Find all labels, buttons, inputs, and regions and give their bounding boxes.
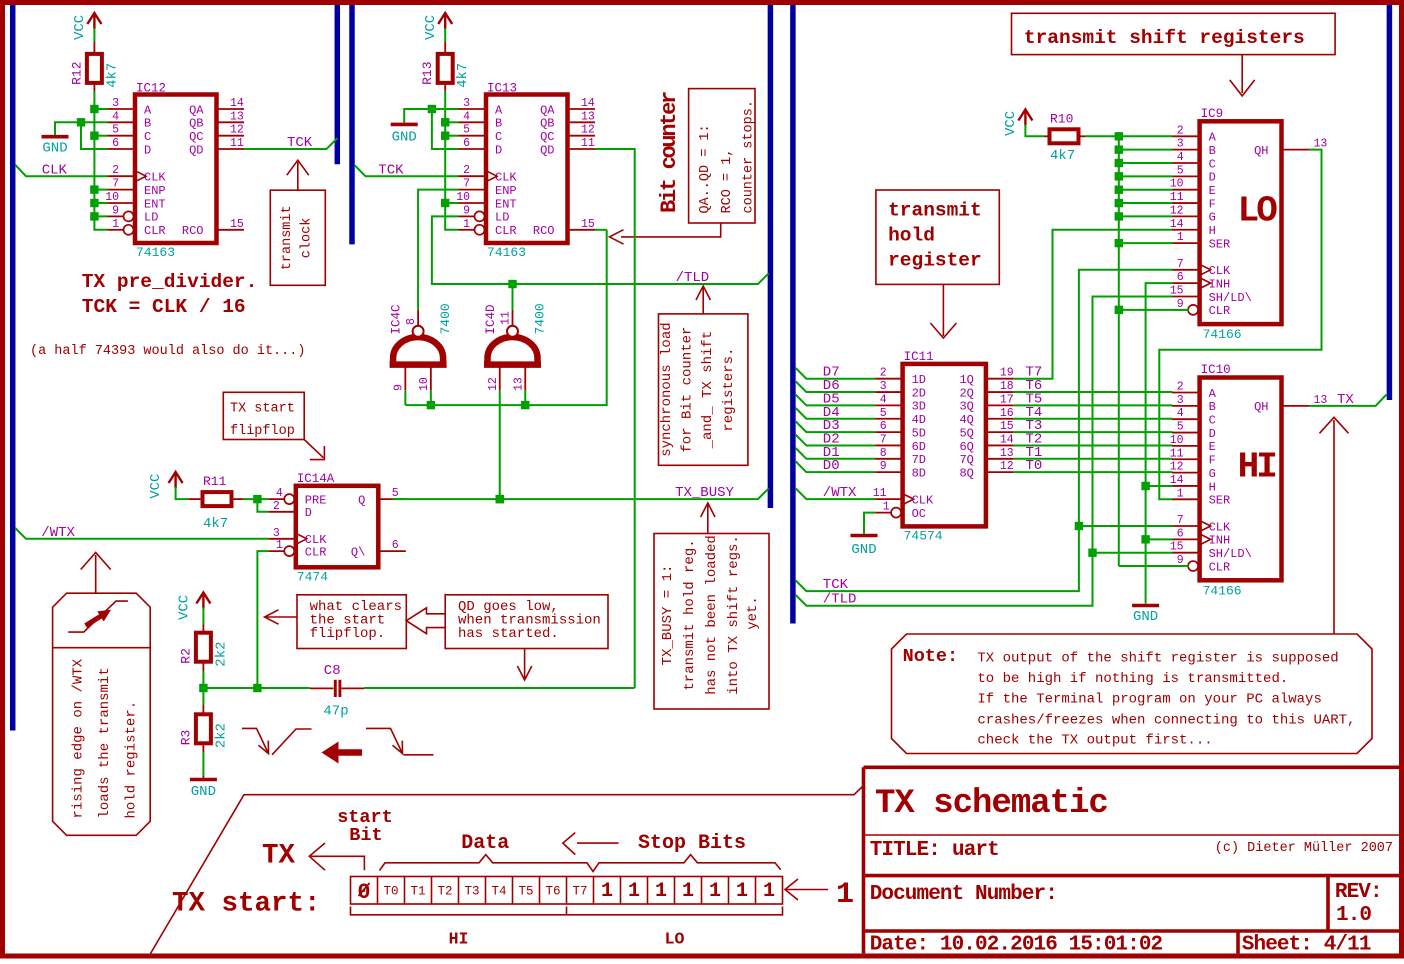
svg-text:1: 1 [836, 878, 854, 912]
svg-text:rising edge on /WTX: rising edge on /WTX [71, 658, 87, 818]
svg-text:CLK: CLK [42, 162, 68, 178]
svg-text:T0: T0 [383, 885, 398, 899]
svg-text:G: G [1209, 211, 1216, 225]
svg-text:QD: QD [540, 143, 554, 157]
svg-text:5: 5 [880, 407, 887, 420]
svg-text:2: 2 [1177, 124, 1184, 137]
svg-text:_and_ TX shift: _and_ TX shift [700, 331, 716, 450]
svg-text:CLK: CLK [1209, 520, 1231, 534]
svg-text:INH: INH [1209, 277, 1231, 291]
svg-text:QB: QB [189, 117, 203, 131]
svg-text:1: 1 [463, 218, 470, 231]
svg-text:/TLD: /TLD [676, 270, 710, 286]
svg-text:LO: LO [665, 930, 685, 949]
svg-text:12: 12 [1000, 460, 1014, 473]
svg-text:CLK: CLK [495, 171, 517, 185]
svg-text:REV:: REV: [1335, 881, 1382, 904]
svg-text:1: 1 [112, 218, 119, 231]
svg-text:hold: hold [888, 225, 935, 247]
svg-text:4: 4 [1177, 151, 1184, 164]
svg-text:C: C [495, 130, 502, 144]
svg-text:CLK: CLK [912, 493, 934, 507]
svg-text:6: 6 [112, 137, 119, 150]
svg-text:1: 1 [763, 880, 775, 903]
svg-text:TX output of the shift registe: TX output of the shift register is suppo… [977, 651, 1338, 667]
svg-text:Bit: Bit [349, 825, 382, 846]
svg-text:13: 13 [581, 110, 595, 123]
svg-text:5D: 5D [912, 426, 926, 440]
svg-text:LO: LO [1238, 190, 1278, 231]
svg-text:GND: GND [851, 542, 876, 558]
svg-text:CLR: CLR [495, 224, 517, 238]
svg-text:QB: QB [540, 117, 554, 131]
svg-text:TX start:: TX start: [172, 889, 321, 920]
svg-text:OC: OC [912, 507, 926, 521]
svg-text:flipflop.: flipflop. [310, 626, 386, 642]
svg-text:16: 16 [1000, 407, 1014, 420]
svg-text:D: D [1209, 427, 1216, 441]
svg-text:4k7: 4k7 [203, 516, 228, 532]
svg-text:13: 13 [513, 377, 526, 391]
svg-text:R3: R3 [178, 730, 193, 746]
svg-text:R11: R11 [203, 474, 227, 489]
svg-text:6: 6 [880, 420, 887, 433]
svg-text:(c) Dieter Müller 2007: (c) Dieter Müller 2007 [1215, 841, 1393, 856]
svg-text:15: 15 [230, 218, 244, 231]
svg-text:5: 5 [1177, 421, 1184, 434]
svg-text:B: B [1209, 400, 1216, 414]
svg-text:to be high if nothing is trans: to be high if nothing is transmitted. [977, 671, 1288, 687]
svg-text:SH/LD\: SH/LD\ [1209, 291, 1252, 305]
svg-text:18: 18 [1000, 380, 1014, 393]
svg-text:11: 11 [581, 137, 595, 150]
svg-text:7: 7 [880, 433, 887, 446]
svg-text:2k2: 2k2 [213, 723, 229, 748]
svg-text:crashes/freezes when connectin: crashes/freezes when connecting to this … [977, 712, 1355, 728]
svg-text:47p: 47p [323, 704, 348, 720]
svg-text:9: 9 [463, 204, 470, 217]
svg-text:1: 1 [601, 880, 613, 903]
svg-text:12: 12 [230, 124, 244, 137]
svg-text:13: 13 [1000, 447, 1014, 460]
svg-text:R12: R12 [69, 61, 84, 84]
svg-text:ENT: ENT [144, 197, 166, 211]
svg-text:QD: QD [189, 143, 203, 157]
svg-text:A: A [1209, 387, 1217, 401]
svg-text:IC4C: IC4C [389, 304, 403, 334]
svg-text:10: 10 [418, 377, 431, 391]
svg-text:VCC: VCC [423, 15, 439, 40]
svg-text:T3: T3 [464, 885, 479, 899]
svg-text:6: 6 [392, 539, 399, 552]
svg-text:HI: HI [1238, 447, 1276, 488]
svg-text:IC9: IC9 [1201, 107, 1224, 121]
svg-text:VCC: VCC [148, 474, 164, 499]
svg-text:14: 14 [1170, 218, 1184, 231]
svg-text:R10: R10 [1050, 111, 1073, 126]
svg-text:11: 11 [1170, 447, 1184, 460]
svg-text:TX: TX [1337, 392, 1354, 408]
svg-text:6: 6 [463, 137, 470, 150]
svg-text:T0: T0 [1026, 458, 1043, 474]
svg-text:GND: GND [392, 130, 417, 146]
svg-text:2: 2 [463, 164, 470, 177]
svg-text:GND: GND [42, 141, 67, 157]
svg-text:T6: T6 [545, 885, 560, 899]
svg-text:B: B [495, 117, 502, 131]
svg-text:LD: LD [144, 211, 158, 225]
svg-text:INH: INH [1209, 534, 1231, 548]
svg-text:SER: SER [1209, 237, 1231, 251]
svg-text:9: 9 [112, 204, 119, 217]
svg-text:12: 12 [1170, 461, 1184, 474]
svg-text:4: 4 [1177, 407, 1184, 420]
svg-text:TCK: TCK [287, 135, 313, 151]
svg-text:transmit hold reg.: transmit hold reg. [682, 539, 698, 690]
svg-text:3D: 3D [912, 400, 926, 414]
svg-text:CLR: CLR [305, 545, 327, 559]
svg-text:2: 2 [880, 367, 887, 380]
svg-text:6D: 6D [912, 440, 926, 454]
svg-text:T7: T7 [572, 885, 587, 899]
svg-text:ENP: ENP [144, 184, 166, 198]
svg-text:TITLE:: TITLE: [870, 839, 940, 862]
svg-text:Q\: Q\ [351, 545, 365, 559]
svg-text:74166: 74166 [1203, 327, 1242, 342]
svg-text:4D: 4D [912, 413, 926, 427]
svg-text:F: F [1209, 454, 1216, 468]
svg-text:C: C [144, 130, 151, 144]
svg-text:for Bit counter: for Bit counter [680, 327, 696, 453]
svg-text:transmit shift registers: transmit shift registers [1024, 27, 1305, 49]
svg-text:IC14A: IC14A [297, 472, 335, 486]
svg-text:E: E [1209, 184, 1216, 198]
svg-text:7: 7 [112, 178, 119, 191]
svg-text:CLR: CLR [1209, 304, 1231, 318]
svg-text:11: 11 [500, 311, 513, 325]
svg-text:QC: QC [540, 130, 554, 144]
svg-text:2: 2 [112, 164, 119, 177]
svg-text:T2: T2 [437, 885, 452, 899]
svg-text:hold register.: hold register. [124, 701, 140, 819]
svg-text:IC13: IC13 [487, 82, 517, 96]
svg-text:9: 9 [393, 384, 406, 391]
svg-text:17: 17 [1000, 393, 1014, 406]
svg-text:IC4D: IC4D [484, 304, 498, 334]
svg-text:loads the transmit: loads the transmit [97, 667, 113, 818]
svg-text:1: 1 [709, 880, 721, 903]
svg-text:synchronous load: synchronous load [659, 322, 675, 456]
svg-text:8Q: 8Q [959, 466, 973, 480]
svg-text:Date: 10.02.2016 15:01:02: Date: 10.02.2016 15:01:02 [870, 934, 1163, 957]
svg-text:H: H [1209, 224, 1216, 238]
svg-text:clock: clock [299, 218, 314, 259]
svg-text:7400: 7400 [438, 303, 453, 334]
svg-text:3: 3 [463, 97, 470, 110]
svg-text:TX schematic: TX schematic [875, 785, 1108, 823]
svg-text:QC: QC [189, 130, 203, 144]
svg-text:B: B [144, 117, 151, 131]
svg-text:TCK: TCK [823, 577, 849, 593]
svg-text:B: B [1209, 144, 1216, 158]
svg-text:74163: 74163 [487, 245, 526, 260]
svg-text:TX pre_divider.: TX pre_divider. [82, 271, 258, 293]
svg-text:TX_BUSY: TX_BUSY [675, 485, 734, 501]
svg-text:1Q: 1Q [959, 373, 973, 387]
svg-text:8: 8 [880, 447, 887, 460]
svg-text:14: 14 [581, 97, 595, 110]
svg-text:/TLD: /TLD [823, 592, 857, 608]
svg-text:3: 3 [880, 380, 887, 393]
svg-text:12: 12 [581, 124, 595, 137]
svg-text:D: D [305, 506, 312, 520]
svg-text:7D: 7D [912, 453, 926, 467]
svg-text:CLR: CLR [144, 224, 166, 238]
svg-text:Note:: Note: [903, 646, 959, 667]
svg-text:2: 2 [273, 500, 280, 513]
svg-text:T5: T5 [518, 885, 533, 899]
svg-text:D0: D0 [823, 458, 840, 474]
svg-text:4: 4 [276, 487, 283, 500]
svg-text:1.0: 1.0 [1336, 904, 1371, 927]
svg-text:C: C [1209, 157, 1216, 171]
svg-text:7: 7 [1177, 514, 1184, 527]
svg-text:3Q: 3Q [959, 400, 973, 414]
svg-text:4: 4 [463, 110, 470, 123]
svg-text:1: 1 [1177, 487, 1184, 500]
svg-text:Bit counter: Bit counter [657, 92, 682, 213]
svg-text:SH/LD\: SH/LD\ [1209, 547, 1252, 561]
svg-text:LD: LD [495, 211, 509, 225]
svg-text:4k7: 4k7 [104, 63, 120, 88]
svg-text:QH: QH [1254, 400, 1268, 414]
svg-text:VCC: VCC [177, 595, 193, 620]
svg-text:9: 9 [880, 460, 887, 473]
svg-text:QA: QA [540, 103, 555, 117]
svg-text:R2: R2 [178, 648, 193, 664]
svg-text:2: 2 [1177, 381, 1184, 394]
svg-text:TCK = CLK / 16: TCK = CLK / 16 [82, 296, 246, 318]
svg-text:/WTX: /WTX [823, 485, 857, 501]
svg-text:transmit: transmit [888, 200, 982, 222]
svg-text:T1: T1 [410, 885, 425, 899]
svg-text:Q: Q [358, 493, 365, 507]
svg-text:C: C [1209, 414, 1216, 428]
svg-text:7: 7 [1177, 258, 1184, 271]
svg-text:7474: 7474 [297, 569, 328, 584]
svg-text:CLR: CLR [1209, 560, 1231, 574]
svg-text:4: 4 [112, 110, 119, 123]
svg-text:TX: TX [262, 841, 296, 872]
svg-text:6Q: 6Q [959, 440, 973, 454]
svg-text:ENP: ENP [495, 184, 517, 198]
svg-text:VCC: VCC [72, 15, 88, 40]
svg-text:2D: 2D [912, 386, 926, 400]
svg-text:Sheet: 4/11: Sheet: 4/11 [1242, 934, 1371, 957]
svg-text:7: 7 [463, 178, 470, 191]
svg-text:R13: R13 [420, 61, 435, 84]
svg-text:flipflop: flipflop [230, 424, 295, 439]
svg-text:H: H [1209, 480, 1216, 494]
svg-text:A: A [144, 103, 152, 117]
svg-text:11: 11 [230, 137, 244, 150]
svg-text:QA..QD = 1:: QA..QD = 1: [698, 124, 713, 213]
svg-text:uart: uart [952, 839, 999, 862]
svg-text:register: register [888, 250, 982, 272]
svg-text:A: A [1209, 131, 1217, 145]
svg-text:E: E [1209, 440, 1216, 454]
svg-text:5: 5 [463, 124, 470, 137]
svg-text:1: 1 [682, 880, 694, 903]
svg-text:74574: 74574 [904, 528, 943, 543]
svg-text:19: 19 [1000, 367, 1014, 380]
svg-text:Data: Data [461, 832, 509, 855]
svg-text:transmit: transmit [280, 205, 295, 270]
svg-text:2k2: 2k2 [213, 641, 229, 666]
svg-text:counter stops.: counter stops. [742, 100, 757, 213]
svg-text:1: 1 [1177, 231, 1184, 244]
svg-text:TX start: TX start [230, 402, 295, 417]
svg-text:4k7: 4k7 [455, 63, 471, 88]
svg-text:5: 5 [1177, 164, 1184, 177]
svg-text:5Q: 5Q [959, 426, 973, 440]
svg-text:5: 5 [112, 124, 119, 137]
svg-text:Stop Bits: Stop Bits [638, 832, 746, 855]
svg-text:12: 12 [487, 377, 500, 391]
svg-text:1: 1 [655, 880, 667, 903]
svg-text:D: D [495, 143, 502, 157]
svg-text:74163: 74163 [136, 245, 175, 260]
svg-text:SER: SER [1209, 494, 1231, 508]
svg-text:IC12: IC12 [136, 82, 166, 96]
svg-text:7Q: 7Q [959, 453, 973, 467]
svg-text:2Q: 2Q [959, 386, 973, 400]
svg-text:1: 1 [276, 539, 283, 552]
svg-text:/WTX: /WTX [41, 525, 75, 541]
svg-text:ENT: ENT [495, 197, 517, 211]
svg-text:RCO: RCO [182, 224, 204, 238]
svg-text:10: 10 [1170, 434, 1184, 447]
svg-text:F: F [1209, 197, 1216, 211]
svg-text:4k7: 4k7 [1050, 148, 1075, 164]
svg-text:VCC: VCC [1003, 111, 1019, 136]
svg-text:If the Terminal program on you: If the Terminal program on your PC alway… [977, 692, 1321, 708]
svg-text:7400: 7400 [533, 303, 548, 334]
svg-text:1: 1 [628, 880, 640, 903]
svg-text:14: 14 [230, 97, 244, 110]
svg-text:4: 4 [880, 393, 887, 406]
svg-text:Document Number:: Document Number: [870, 883, 1057, 906]
svg-text:15: 15 [581, 218, 595, 231]
svg-text:into TX shift regs.: into TX shift regs. [726, 535, 742, 695]
svg-text:15: 15 [1000, 420, 1014, 433]
svg-text:registers.: registers. [721, 348, 737, 432]
svg-text:1: 1 [883, 501, 890, 514]
svg-text:3: 3 [112, 97, 119, 110]
svg-text:(a half 74393 would also do it: (a half 74393 would also do it...) [30, 344, 305, 359]
svg-text:3: 3 [1177, 138, 1184, 151]
svg-text:TCK: TCK [378, 162, 404, 178]
svg-text:3: 3 [273, 527, 280, 540]
svg-text:D: D [1209, 171, 1216, 185]
svg-text:IC11: IC11 [904, 350, 934, 364]
svg-text:IC10: IC10 [1201, 363, 1231, 377]
svg-text:4Q: 4Q [959, 413, 973, 427]
svg-text:T4: T4 [491, 885, 506, 899]
svg-text:has not been loaded: has not been loaded [704, 535, 720, 695]
svg-text:8D: 8D [912, 466, 926, 480]
svg-text:RCO = 1,: RCO = 1, [720, 149, 735, 214]
svg-text:14: 14 [1000, 433, 1014, 446]
svg-text:RCO: RCO [533, 224, 555, 238]
svg-text:6: 6 [1177, 527, 1184, 540]
svg-text:has started.: has started. [458, 626, 559, 642]
svg-text:GND: GND [1133, 609, 1158, 625]
svg-text:CLK: CLK [144, 171, 166, 185]
svg-text:1: 1 [736, 880, 748, 903]
svg-text:3: 3 [1177, 394, 1184, 407]
svg-text:TX_BUSY = 1:: TX_BUSY = 1: [660, 565, 676, 666]
svg-text:1D: 1D [912, 373, 926, 387]
svg-text:D: D [144, 143, 151, 157]
svg-text:check the TX output first...: check the TX output first... [977, 733, 1212, 749]
svg-text:6: 6 [1177, 271, 1184, 284]
svg-text:A: A [495, 103, 503, 117]
svg-text:74166: 74166 [1203, 583, 1242, 598]
svg-text:13: 13 [230, 110, 244, 123]
svg-text:HI: HI [449, 930, 469, 949]
svg-text:yet.: yet. [745, 596, 761, 630]
svg-text:8: 8 [405, 318, 418, 325]
svg-text:G: G [1209, 467, 1216, 481]
svg-text:CLK: CLK [1209, 264, 1231, 278]
svg-text:QH: QH [1254, 144, 1268, 158]
svg-text:QA: QA [189, 103, 204, 117]
svg-text:C8: C8 [324, 663, 341, 679]
svg-text:GND: GND [191, 784, 216, 800]
